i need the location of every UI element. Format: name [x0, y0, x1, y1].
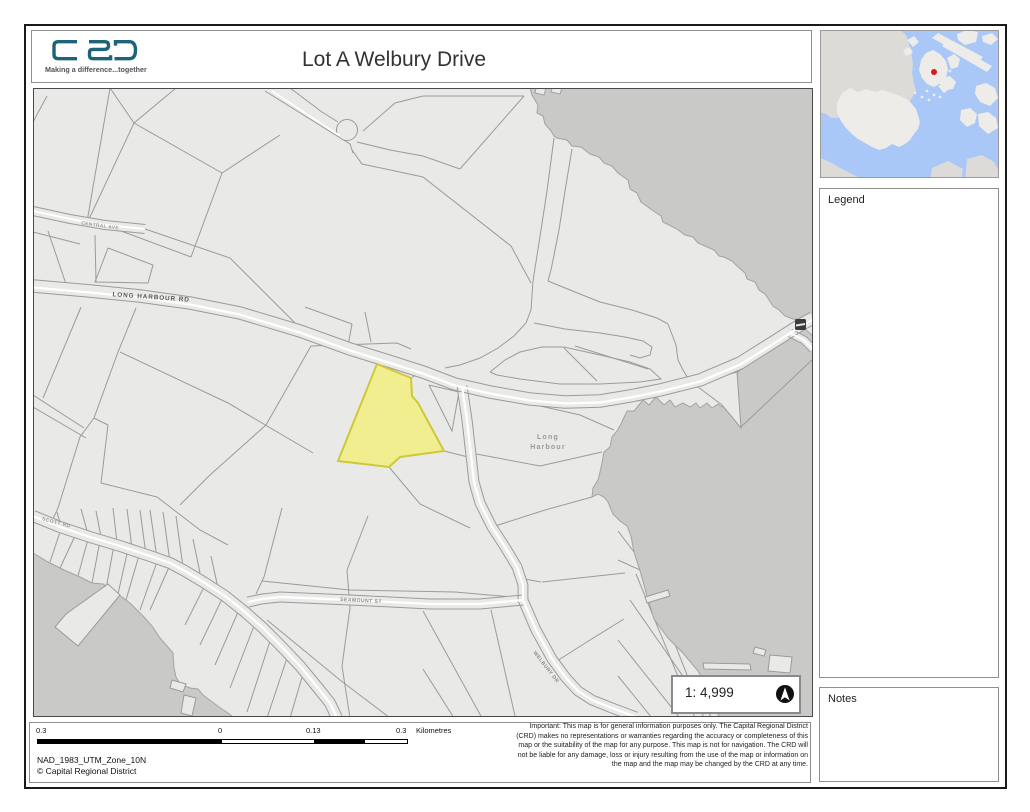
svg-text:Long: Long	[537, 434, 559, 441]
svg-text:Making a difference...together: Making a difference...together	[45, 65, 147, 74]
svg-text:Harbour: Harbour	[530, 444, 566, 451]
